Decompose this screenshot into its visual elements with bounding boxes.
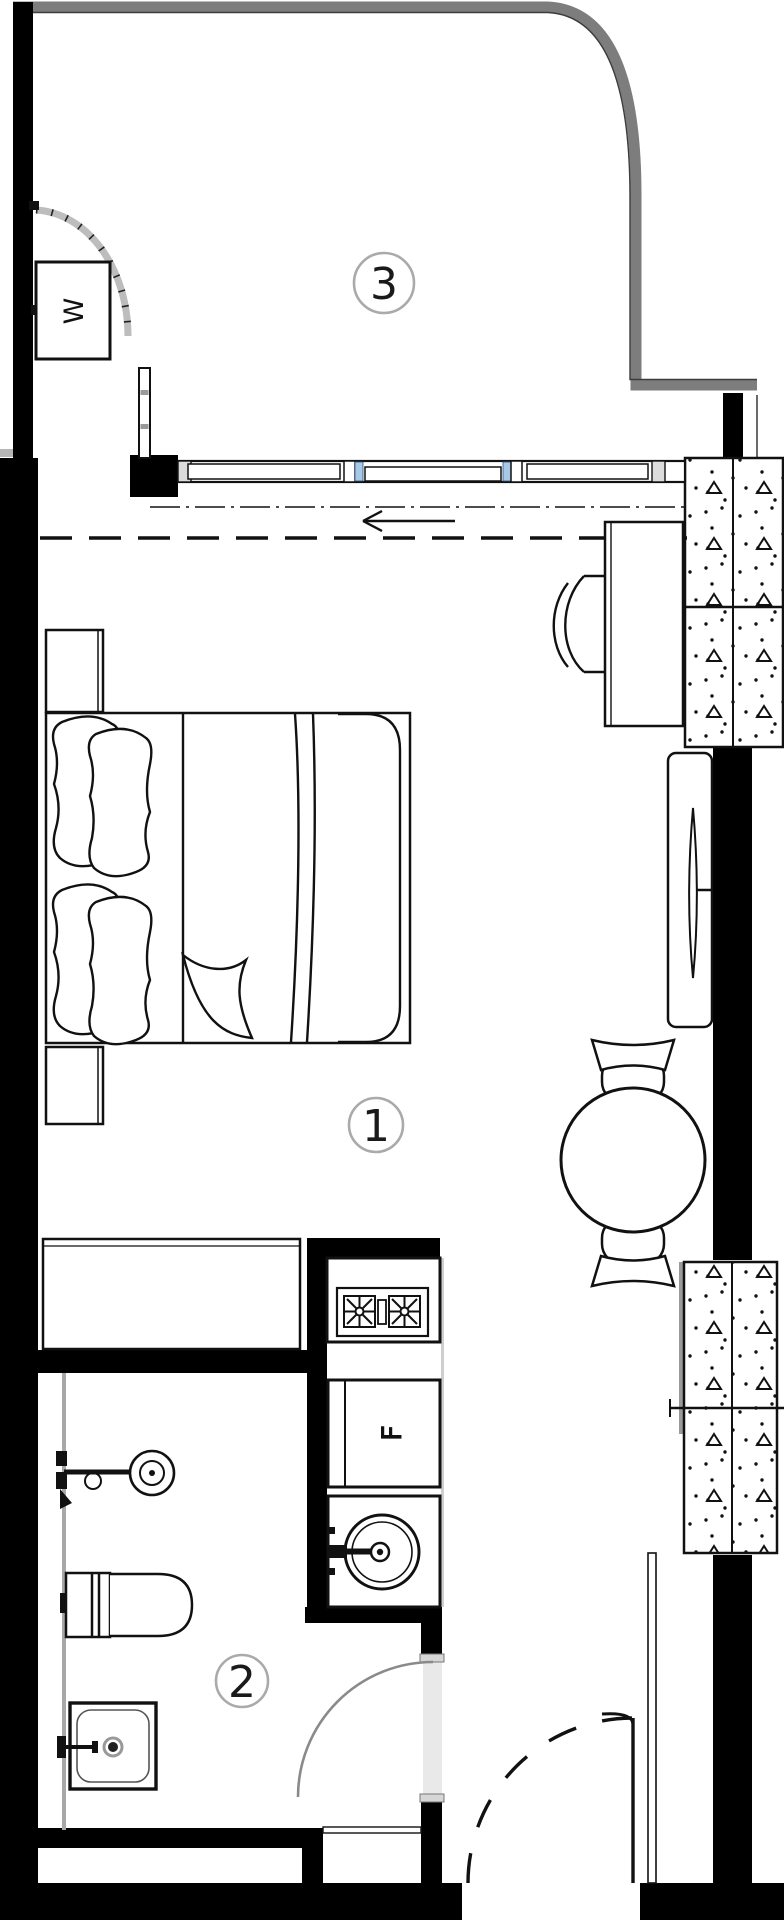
fridge-label: F bbox=[377, 1425, 408, 1441]
window-pane-center bbox=[365, 467, 501, 481]
burner bbox=[344, 1296, 375, 1327]
washing-machine-valve bbox=[31, 305, 36, 315]
leaf-tick bbox=[141, 424, 149, 429]
leaf-tick bbox=[141, 390, 149, 395]
window-end-post bbox=[652, 461, 665, 482]
desk bbox=[605, 522, 683, 726]
balcony-door-hinge bbox=[29, 201, 39, 210]
wall-window-pier bbox=[130, 455, 178, 497]
wall-bathroom-bottom bbox=[38, 1828, 323, 1848]
wall-right-top bbox=[723, 393, 743, 458]
wall-bathroom-top bbox=[38, 1350, 307, 1373]
floor-plan-svg: W bbox=[0, 0, 784, 1920]
burner bbox=[389, 1296, 420, 1327]
pillow bbox=[89, 897, 151, 1044]
thin-wall bbox=[648, 1553, 656, 1883]
window-band bbox=[178, 461, 685, 482]
balcony-door-leaf bbox=[139, 368, 150, 458]
svg-text:2: 2 bbox=[228, 1657, 256, 1708]
wall-bottom-left bbox=[0, 1883, 462, 1920]
wall-kitchen-left bbox=[307, 1238, 327, 1623]
window-pane-left bbox=[188, 464, 340, 479]
dining-table bbox=[561, 1088, 705, 1232]
stove bbox=[327, 1258, 440, 1342]
window-glass-right bbox=[503, 462, 511, 481]
wall-left-main bbox=[0, 458, 38, 1920]
kitchen-counter bbox=[43, 1239, 300, 1349]
wall-bottom-right bbox=[640, 1883, 784, 1920]
stove-handle bbox=[378, 1300, 386, 1324]
shower-tray bbox=[57, 1703, 156, 1789]
fridge: F bbox=[328, 1380, 440, 1487]
wall-cap bbox=[0, 449, 13, 457]
sink-tap-base bbox=[327, 1545, 347, 1558]
window-glass-left bbox=[355, 462, 363, 481]
wall-kitchen-bottom bbox=[305, 1607, 442, 1623]
entrance-jamb-notch bbox=[628, 1883, 639, 1905]
toilet bbox=[60, 1573, 192, 1637]
wall-kitchen-top bbox=[307, 1238, 440, 1258]
floor-plan: W bbox=[0, 0, 784, 1920]
svg-text:3: 3 bbox=[370, 259, 398, 310]
wall-hall-pillar bbox=[302, 1828, 323, 1883]
washer-label: W bbox=[59, 298, 90, 325]
window-mullion bbox=[344, 461, 355, 482]
window-mullion bbox=[511, 461, 522, 482]
svg-text:1: 1 bbox=[362, 1101, 390, 1152]
nightstand-top bbox=[46, 630, 103, 712]
wall-balcony-left bbox=[13, 2, 33, 458]
hall-wall-line bbox=[323, 1827, 421, 1833]
pillow bbox=[89, 729, 151, 876]
wall-door-jamb-bottom bbox=[421, 1802, 442, 1883]
wall-right-middle bbox=[713, 748, 752, 1260]
kitchen: F bbox=[327, 1258, 444, 1607]
kitchen-sink bbox=[327, 1496, 440, 1607]
wall-right-bottom bbox=[713, 1555, 752, 1883]
nightstand-bottom bbox=[46, 1047, 103, 1124]
dining-chair-bottom-back bbox=[592, 1256, 674, 1286]
door-cap bbox=[420, 1794, 444, 1802]
window-pane-right bbox=[527, 464, 648, 479]
bathroom-door-opening bbox=[423, 1660, 442, 1798]
